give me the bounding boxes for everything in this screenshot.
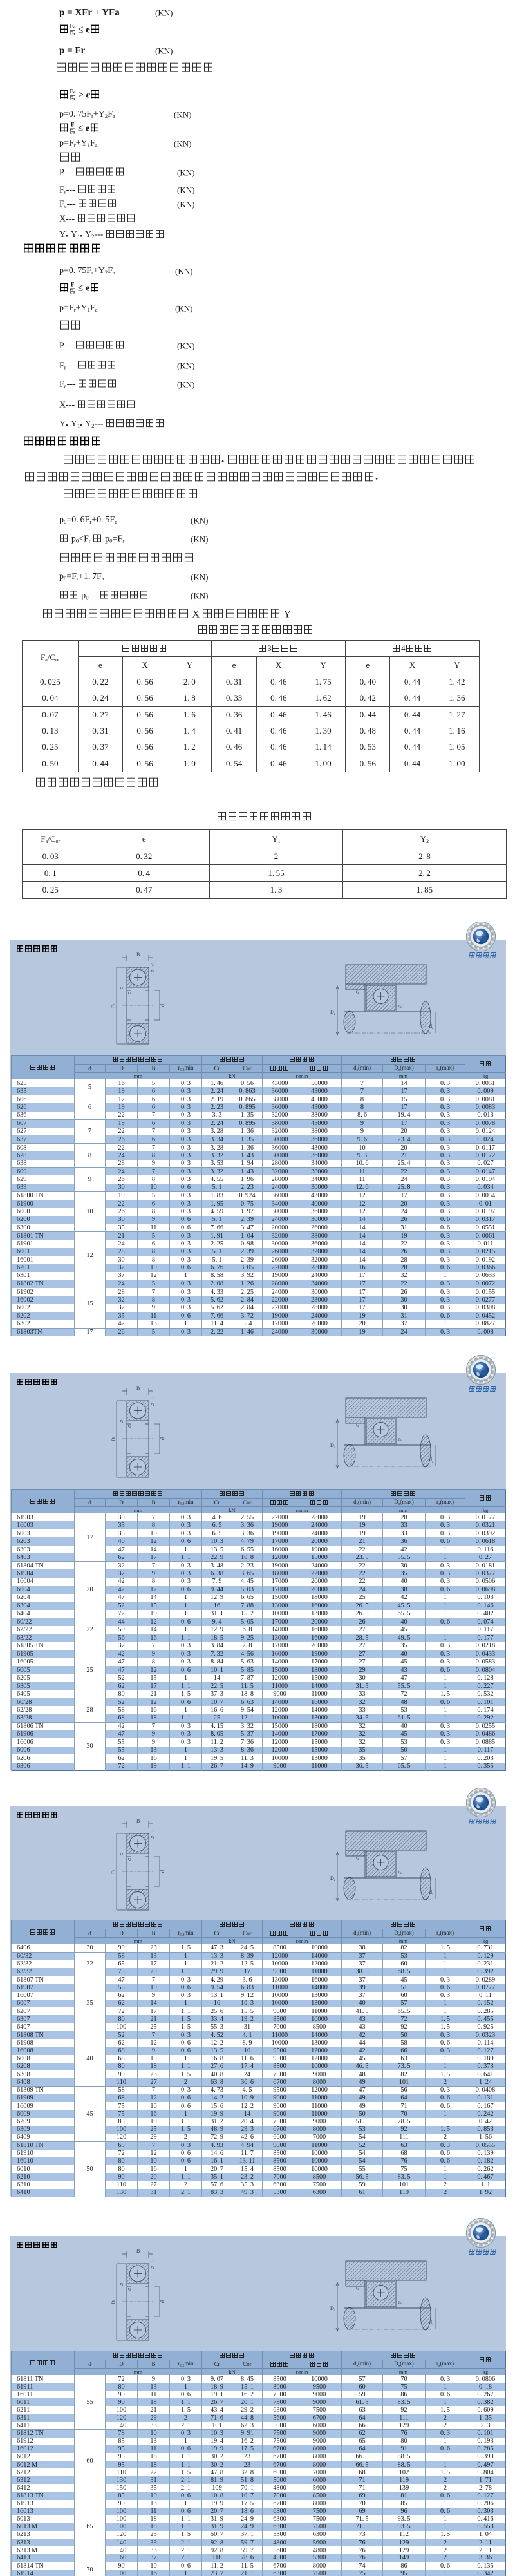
svg-text:r2: r2 [151,2259,154,2264]
svg-text:D: D [111,1004,117,1008]
svg-text:r2: r2 [128,1425,131,1429]
svg-text:r1: r1 [151,1403,154,1407]
svg-text:Da: Da [330,2306,336,2313]
svg-text:r1: r1 [120,2282,124,2287]
svg-text:r1: r1 [151,1835,154,1840]
svg-text:Da: Da [330,1009,336,1016]
svg-text:D: D [111,2300,117,2304]
svg-text:da: da [429,1023,434,1030]
svg-text:ra: ra [398,2300,402,2306]
svg-text:da: da [429,1457,434,1464]
svg-text:ra: ra [398,1437,402,1443]
svg-text:r1: r1 [120,1419,124,1424]
svg-text:B: B [136,1818,140,1824]
svg-text:r2: r2 [128,1857,131,1862]
svg-text:B: B [136,952,140,958]
svg-text:Da: Da [330,1875,336,1882]
svg-text:r2: r2 [151,1396,154,1401]
svg-text:da: da [429,2320,434,2327]
svg-text:r2: r2 [151,1829,154,1833]
svg-text:r2: r2 [128,2287,131,2292]
svg-text:d: d [160,1004,165,1007]
svg-text:d: d [160,1437,165,1440]
svg-text:D: D [111,1870,117,1874]
svg-text:Da: Da [330,1443,336,1450]
svg-text:r1: r1 [151,969,154,974]
svg-text:r1: r1 [151,2266,154,2270]
svg-text:d: d [160,1870,165,1873]
svg-text:B: B [136,2248,140,2254]
svg-text:d: d [160,2300,165,2303]
svg-text:r2: r2 [151,963,154,967]
svg-text:r2: r2 [128,991,131,996]
svg-text:da: da [429,1889,434,1897]
svg-text:ra: ra [398,1870,402,1875]
svg-text:r1: r1 [120,986,124,990]
svg-text:B: B [136,1385,140,1391]
svg-text:ra: ra [398,1003,402,1009]
svg-text:r1: r1 [120,1852,124,1857]
svg-text:D: D [111,1437,117,1441]
